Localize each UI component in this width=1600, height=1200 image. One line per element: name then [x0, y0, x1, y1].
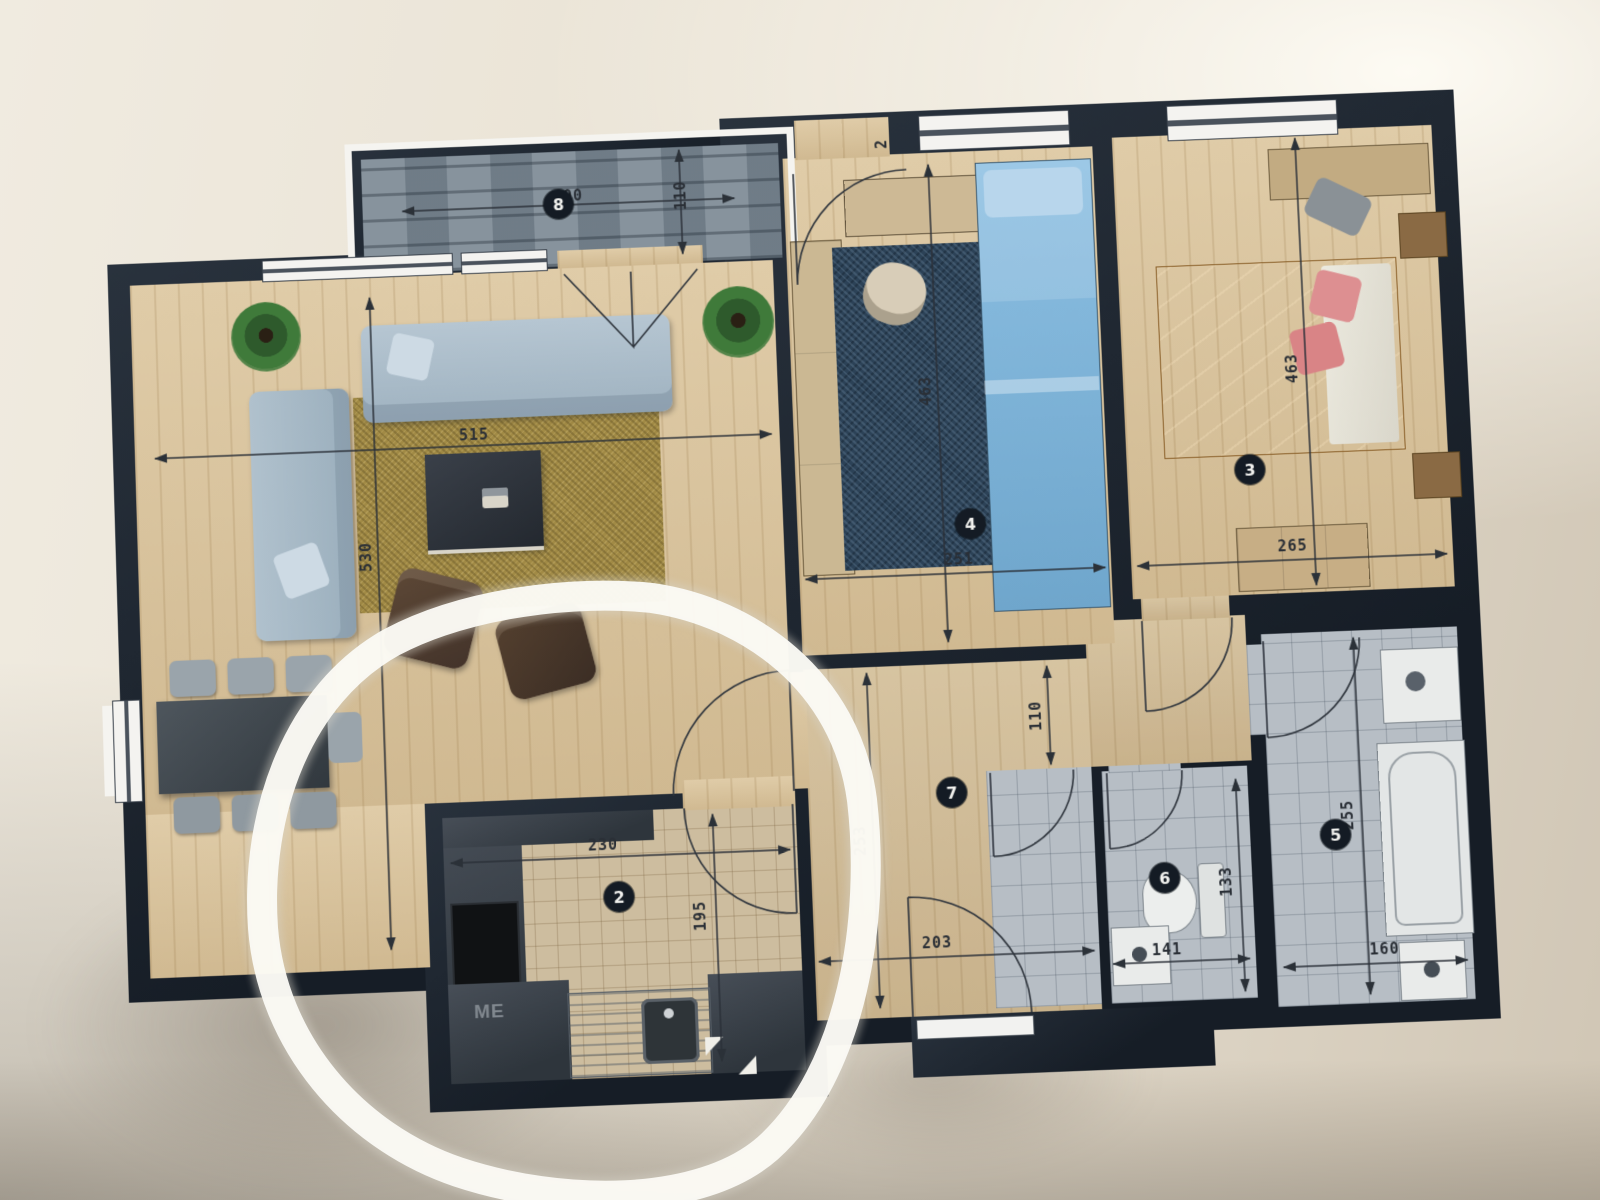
floorplan-photo: ME: [0, 0, 1600, 1200]
dining-chair: [290, 791, 337, 829]
dim-living-depth: 530: [356, 529, 376, 586]
dim-bedroom-right-width: 265: [1264, 536, 1321, 556]
kitchen-counter-bottom: [448, 980, 572, 1084]
kitchen-cabinet-right: [708, 970, 807, 1073]
closet: [1236, 523, 1371, 592]
nightstand: [1412, 451, 1462, 499]
dim-living-width: 515: [446, 425, 503, 445]
dining-table: [156, 695, 329, 794]
sofa-chaise: [249, 388, 357, 641]
dining-chair: [227, 657, 274, 695]
dim-bedroom-middle-depth: 463: [916, 363, 936, 419]
living-window-2: [461, 249, 548, 274]
kitchen-cabinet-label: ME: [474, 1001, 505, 1025]
dim-kitchen-depth: 195: [690, 887, 710, 944]
living-side-window: [112, 699, 143, 803]
door-opening-bedroom-right: [1141, 595, 1230, 621]
dim-hall-width: 203: [908, 933, 965, 953]
dim-wc-depth: 133: [1216, 853, 1237, 910]
laptop: [482, 487, 509, 508]
bedroom-middle-window: [918, 110, 1070, 151]
dim-wc-width: 141: [1138, 939, 1195, 959]
wall-hatch: [705, 1037, 724, 1056]
dim-entry: 2: [872, 134, 891, 154]
wall-hatch: [738, 1056, 757, 1075]
vestibule-floor: [986, 767, 1102, 1008]
dining-chair: [327, 712, 363, 764]
dim-bedroom-middle-width: 251: [930, 549, 987, 569]
dining-chair: [285, 655, 332, 693]
kitchen-sink-bowl: [641, 997, 700, 1064]
dining-chair: [231, 794, 278, 832]
dim-balcony-depth: 110: [671, 167, 691, 223]
bedroom-right-window: [1166, 99, 1338, 141]
pillow: [983, 167, 1083, 218]
dim-bathroom-width: 160: [1356, 939, 1413, 959]
bathtub-inner: [1387, 750, 1464, 926]
dim-kitchen-width: 230: [575, 835, 632, 855]
door-opening-kitchen: [682, 776, 796, 811]
dining-chair: [173, 796, 220, 834]
dim-bedroom-right-depth: 463: [1282, 340, 1303, 396]
floor-plan: ME: [83, 65, 1514, 1131]
dim-hall-north: 110: [1026, 687, 1047, 744]
wall-base-entry-step: [911, 1005, 1216, 1078]
nightstand: [1398, 211, 1448, 258]
sofa-pillow: [385, 332, 435, 381]
dim-hall-south: 253: [850, 812, 870, 869]
dining-chair: [169, 659, 216, 697]
